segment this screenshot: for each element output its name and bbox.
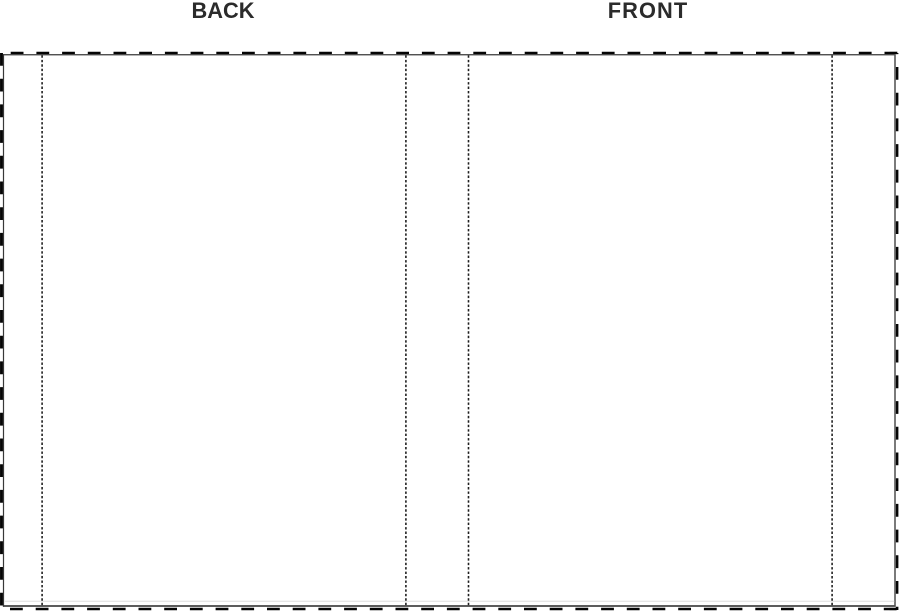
svg-text:FRONT: FRONT: [608, 0, 689, 23]
svg-text:BACK: BACK: [192, 0, 255, 23]
